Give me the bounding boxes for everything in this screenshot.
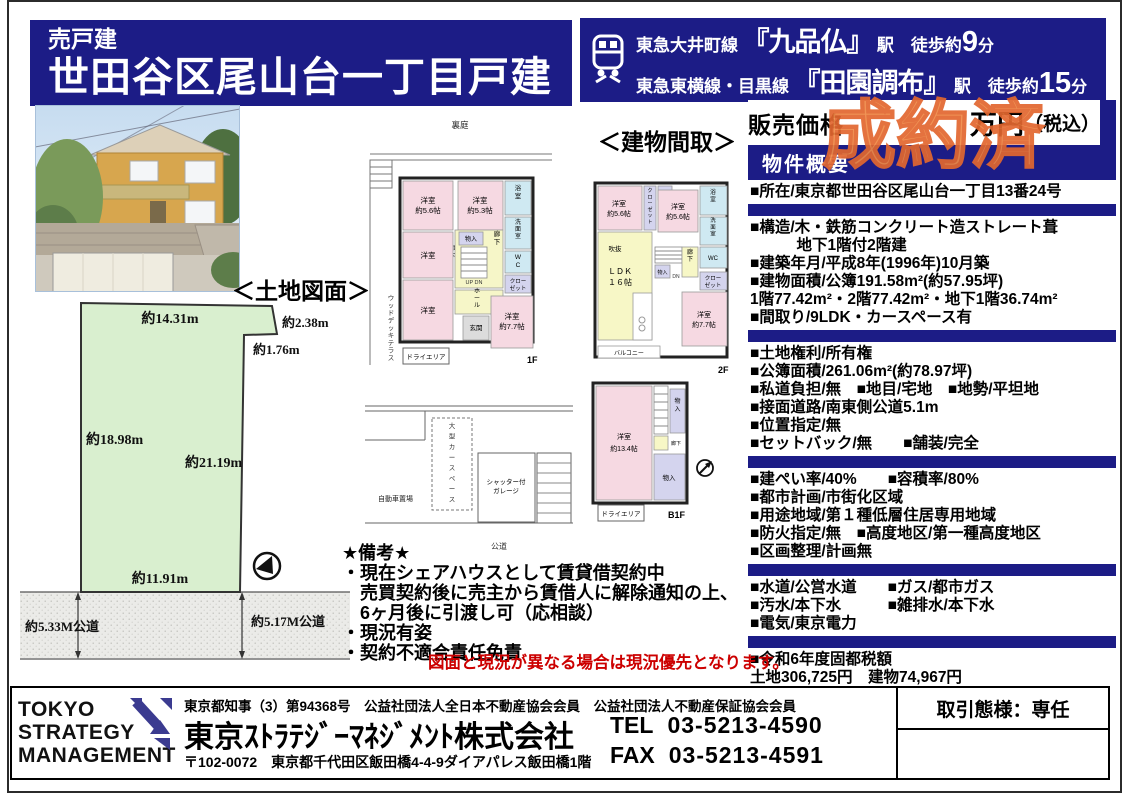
room-label: 洋室 xyxy=(671,202,685,211)
bath-label: 浴室 xyxy=(515,183,522,200)
room-label: 洋室 xyxy=(421,305,436,315)
floor-plan-1f: 裏庭 洋室 約5.6帖 洋室 約5.3帖 浴室 洗面室 物入 UP DN 廊下 … xyxy=(355,110,585,560)
overview-line: ■私道負担/無 ■地目/宅地 ■地勢/平坦地 xyxy=(750,381,1116,399)
floor-plan-b1f: 洋室 約13.4帖 UP 物入 廊下 物入 ドライエリア B1F xyxy=(588,381,760,564)
overview-line: ■水道/公営水道 ■ガス/都市ガス xyxy=(750,579,1116,597)
room-size: 約5.6帖 xyxy=(415,205,441,215)
overview-line: ■都市計画/市街化区域 xyxy=(750,489,1116,507)
overview-line: ■セットバック/無 ■舗装/完全 xyxy=(750,435,1116,453)
washroom-label: 洗面室 xyxy=(710,216,716,238)
storage-label: 物入 xyxy=(663,473,677,482)
minutes-unit: 分 xyxy=(1071,79,1087,96)
overview-line: ■位置指定/無 xyxy=(750,417,1116,435)
overview-line: ■用途地域/第１種低層住居専用地域 xyxy=(750,507,1116,525)
deal-type-box: 取引態様：専任 xyxy=(896,688,1108,778)
garage-label: シャッター付 xyxy=(487,477,527,486)
company-address: 〒102-0072 東京都千代田区飯田橋4-4-9ダイアパレス飯田橋1階 xyxy=(184,752,591,772)
storage-label: 物入 xyxy=(465,235,477,243)
yard-label: 裏庭 xyxy=(451,120,469,130)
overview-section: ■建ぺい率/40% ■容積率/80%■都市計画/市街化区域■用途地域/第１種低層… xyxy=(748,468,1116,564)
overview-section: ■令和6年度固都税額土地306,725円 建物74,967円 xyxy=(748,648,1116,690)
wc-label: WC xyxy=(708,256,719,262)
entrance-label: 玄関 xyxy=(470,323,483,332)
room-size: 約5.6帖 xyxy=(607,209,631,218)
parking-label: 自動車置場 xyxy=(378,494,413,503)
deal-empty-cell xyxy=(898,730,1108,778)
measure-right1: 約1.76m xyxy=(253,342,300,357)
overview-line: ■建築年月/平成8年(1996年)10月築 xyxy=(750,255,1116,273)
road-left-label: 約5.33M公道 xyxy=(25,619,99,634)
measure-bottom: 約11.91m xyxy=(132,570,189,587)
overview-line: ■令和6年度固都税額 xyxy=(750,651,1116,669)
overview-section: ■所在/東京都世田谷区尾山台一丁目13番24号 xyxy=(748,180,1116,204)
overview-line: ■防火指定/無 ■高度地区/第一種高度地区 xyxy=(750,525,1116,543)
room-size: 約5.3帖 xyxy=(467,205,493,215)
overview-line: ■建ぺい率/40% ■容積率/80% xyxy=(750,471,1116,489)
section-divider xyxy=(748,564,1116,576)
ldk-size: １６帖 xyxy=(608,277,632,287)
overview-line: 地下1階付2階建 xyxy=(750,237,1116,255)
overview-section: ■水道/公営水道 ■ガス/都市ガス■汚水/本下水 ■雑排水/本下水■電気/東京電… xyxy=(748,576,1116,636)
remark-line: ★備考★ xyxy=(342,543,754,563)
washroom-label: 洗面室 xyxy=(515,218,521,240)
measure-topright: 約2.38m xyxy=(282,315,329,330)
closet-label: クローゼット xyxy=(647,188,652,226)
station-name: 『九品仏』 xyxy=(742,27,872,57)
fax-row: FAX03-5213-4591 xyxy=(610,740,824,770)
room-label: 洋室 xyxy=(697,310,711,319)
overview-line: ■建物面積/公簿191.58m²(約57.95坪) xyxy=(750,273,1116,291)
tel-row: TEL03-5213-4590 xyxy=(610,710,824,740)
remarks-block: ★備考★・現在シェアハウスとして賃貸借契約中 売買契約後に売主から賃借人に解除通… xyxy=(342,543,754,663)
remark-line: 売買契約後に売主から賃借人に解除通知の上、 xyxy=(342,583,754,603)
room-label: 洋室 xyxy=(612,199,626,208)
room-label: 洋室 xyxy=(473,195,488,205)
section-divider xyxy=(748,456,1116,468)
overview-section: ■構造/木・鉄筋コンクリート造ストレート葺 地下1階付2階建■建築年月/平成8年… xyxy=(748,216,1116,330)
line-name: 東急大井町線 xyxy=(636,36,738,55)
hall-label: ホール xyxy=(474,288,480,309)
floor-plan-2f: 洋室 約5.6帖 クローゼット 洋室 約5.6帖 浴室 洗面室 吹抜 ＬＤＫ １… xyxy=(588,150,760,387)
overview-line: ■汚水/本下水 ■雑排水/本下水 xyxy=(750,597,1116,615)
garage-label: ガレージ xyxy=(493,486,519,495)
room-size: 約7.7帖 xyxy=(499,321,525,331)
remarks-lines: ★備考★・現在シェアハウスとして賃貸借契約中 売買契約後に売主から賃借人に解除通… xyxy=(342,543,754,663)
bath-label: 浴室 xyxy=(710,188,716,204)
stairs-label: DN xyxy=(672,274,680,280)
fax-number: 03-5213-4591 xyxy=(669,742,824,768)
remark-line: 6ヶ月後に引渡し可（応相談） xyxy=(342,603,754,623)
company-logo-mark xyxy=(128,694,174,755)
section-divider xyxy=(748,330,1116,342)
measure-left: 約18.98m xyxy=(86,431,143,448)
corridor-label: 廊下 xyxy=(494,229,501,246)
page-title: 世田谷区尾山台一丁目戸建 xyxy=(48,52,572,102)
room-label: 洋室 xyxy=(421,250,436,260)
remark-line: ・現在シェアハウスとして賃貸借契約中 xyxy=(342,563,754,583)
overview-line: ■構造/木・鉄筋コンクリート造ストレート葺 xyxy=(750,219,1116,237)
overview-line: ■間取り/9LDK・カースペース有 xyxy=(750,309,1116,327)
overview-section: ■土地権利/所有権■公簿面積/261.06m²(約78.97坪)■私道負担/無 … xyxy=(748,342,1116,456)
void-label: 吹抜 xyxy=(609,244,623,253)
closet-label: ゼット xyxy=(510,284,527,292)
walk-minutes: 9 xyxy=(962,26,978,58)
property-overview: 物件概要 ■所在/東京都世田谷区尾山台一丁目13番24号■構造/木・鉄筋コンクリ… xyxy=(748,145,1116,690)
overview-line: ■接面道路/南東側公道5.1m xyxy=(750,399,1116,417)
room-size: 約5.6帖 xyxy=(666,212,690,221)
sale-type: 売戸建 xyxy=(48,26,572,52)
road-right-label: 約5.17M公道 xyxy=(251,614,325,629)
section-divider xyxy=(748,204,1116,216)
line-name: 東急東横線・目黒線 xyxy=(636,77,789,96)
ldk-label: ＬＤＫ xyxy=(608,267,632,276)
dry-area-label: ドライエリア xyxy=(407,353,446,361)
floor-label: 1F xyxy=(527,355,538,365)
closet-label: クロー xyxy=(705,275,722,282)
station-line-1: 東急大井町線 『九品仏』 駅 徒歩約9分 xyxy=(636,20,1100,59)
overview-sections: ■所在/東京都世田谷区尾山台一丁目13番24号■構造/木・鉄筋コンクリート造スト… xyxy=(748,180,1116,690)
tel-number: 03-5213-4590 xyxy=(667,712,822,738)
deck-label: ウッドデッキテラス xyxy=(388,294,395,362)
listing-title-box: 売戸建 世田谷区尾山台一丁目戸建 xyxy=(30,20,572,106)
overview-line: ■公簿面積/261.06m²(約78.97坪) xyxy=(750,363,1116,381)
remark-line: ・現況有姿 xyxy=(342,623,754,643)
minutes-unit: 分 xyxy=(978,38,994,55)
overview-line: 1階77.42m²・2階77.42m²・地下1階36.74m² xyxy=(750,291,1116,309)
overview-line: ■所在/東京都世田谷区尾山台一丁目13番24号 xyxy=(750,183,1116,201)
room-size: 約13.4帖 xyxy=(610,444,638,453)
deal-type: 取引態様：専任 xyxy=(898,688,1108,730)
stairs-label: UP DN xyxy=(465,280,482,286)
measure-right: 約21.19m xyxy=(185,454,242,471)
walk-label: 駅 徒歩約 xyxy=(877,36,962,55)
price-right-bar xyxy=(1100,100,1116,145)
corridor-label: 廊下 xyxy=(687,248,693,263)
storage-label: 物入 xyxy=(657,269,667,276)
car-space-label: 大型カースペース xyxy=(449,421,456,504)
room-size: 約7.7帖 xyxy=(692,320,716,329)
room-label: 洋室 xyxy=(505,311,520,321)
disclaimer-caption: 図面と現況が異なる場合は現況優先となります。 xyxy=(428,649,789,673)
floor-label: 2F xyxy=(718,365,729,375)
footer: TOKYO STRATEGY MANAGEMENT 東京都知事（3）第94368… xyxy=(10,686,1110,780)
overview-line: ■土地権利/所有権 xyxy=(750,345,1116,363)
overview-line: ■区画整理/計画無 xyxy=(750,543,1116,561)
dry-area-label: ドライエリア xyxy=(602,510,641,518)
measure-top: 約14.31m xyxy=(141,310,198,327)
balcony-label: バルコニー xyxy=(614,350,644,357)
room-label: 洋室 xyxy=(421,195,436,205)
overview-line: 土地306,725円 建物74,967円 xyxy=(750,669,1116,687)
section-divider xyxy=(748,636,1116,648)
room-label: 洋室 xyxy=(617,432,631,441)
tel-fax: TEL03-5213-4590 FAX03-5213-4591 xyxy=(610,710,824,770)
sold-stamp: 成約済 xyxy=(822,76,1044,183)
closet-label: ゼット xyxy=(705,281,722,289)
corridor-label: 廊下 xyxy=(671,440,681,447)
tel-label: TEL xyxy=(610,712,653,738)
fax-label: FAX xyxy=(610,742,655,768)
company-name: 東京ｽﾄﾗﾃｼﾞｰﾏﾈｼﾞﾒﾝﾄ株式会社 xyxy=(184,712,574,756)
overview-line: ■電気/東京電力 xyxy=(750,615,1116,633)
land-plan-drawing: 約14.31m 約2.38m 約1.76m 約18.98m 約21.19m 約1… xyxy=(20,270,350,695)
closet-label: クロー xyxy=(510,278,527,285)
floor-label: B1F xyxy=(668,510,686,520)
train-icon xyxy=(590,32,626,89)
property-photo xyxy=(35,105,240,297)
